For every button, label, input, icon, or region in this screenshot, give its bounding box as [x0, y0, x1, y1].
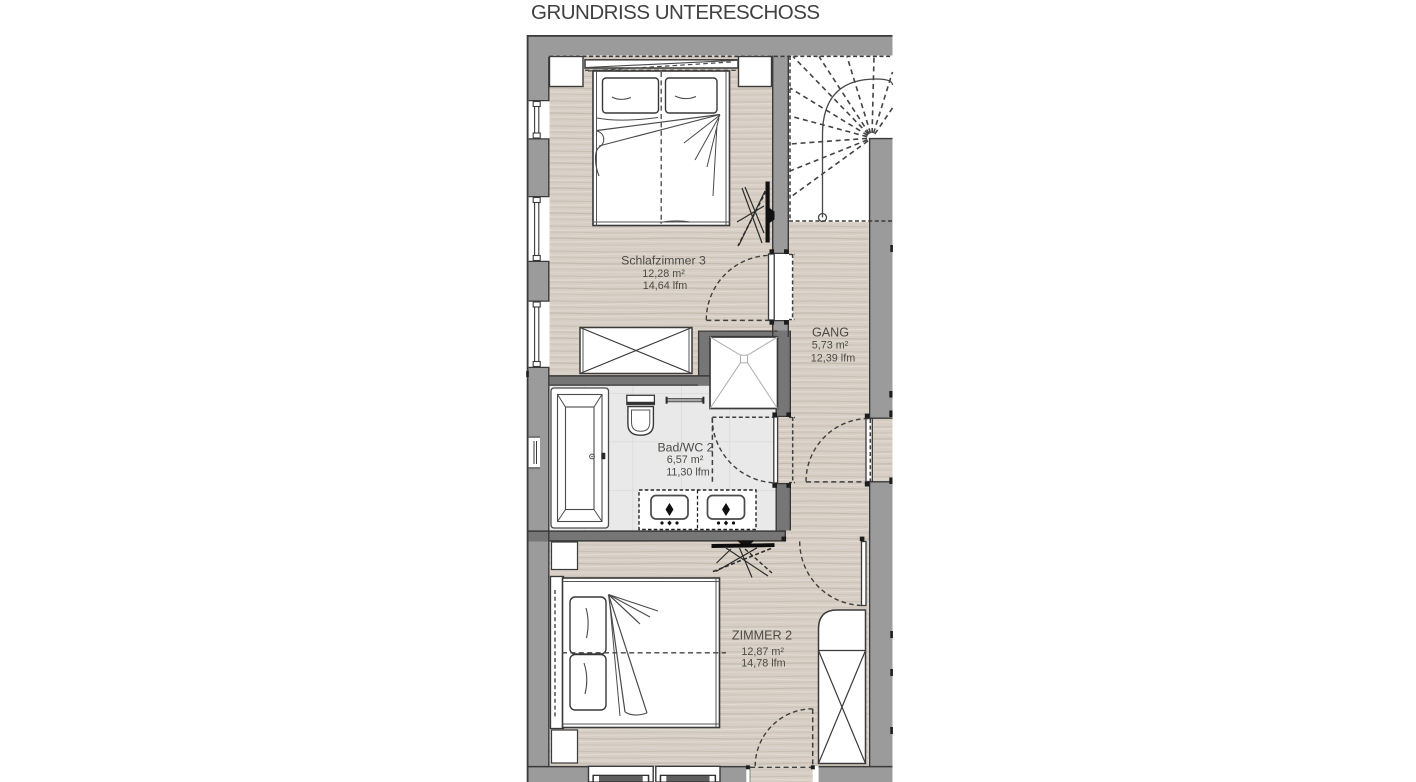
svg-text:14,64 lfm: 14,64 lfm: [643, 280, 687, 292]
svg-text:14,78 lfm: 14,78 lfm: [741, 657, 785, 669]
svg-text:5,73 m²: 5,73 m²: [812, 340, 849, 352]
svg-text:ZIMMER 2: ZIMMER 2: [732, 629, 792, 643]
svg-text:Bad/WC 2: Bad/WC 2: [657, 440, 713, 454]
svg-text:GANG: GANG: [812, 325, 849, 339]
svg-text:Schlafzimmer 3: Schlafzimmer 3: [621, 254, 706, 268]
svg-text:6,57 m²: 6,57 m²: [667, 454, 704, 466]
svg-text:12,39 lfm: 12,39 lfm: [811, 353, 855, 365]
svg-text:12,87 m²: 12,87 m²: [741, 646, 784, 658]
svg-text:GRUNDRISS UNTERESCHOSS: GRUNDRISS UNTERESCHOSS: [531, 1, 820, 24]
svg-text:12,28 m²: 12,28 m²: [642, 268, 685, 280]
svg-text:11,30 lfm: 11,30 lfm: [666, 467, 710, 479]
